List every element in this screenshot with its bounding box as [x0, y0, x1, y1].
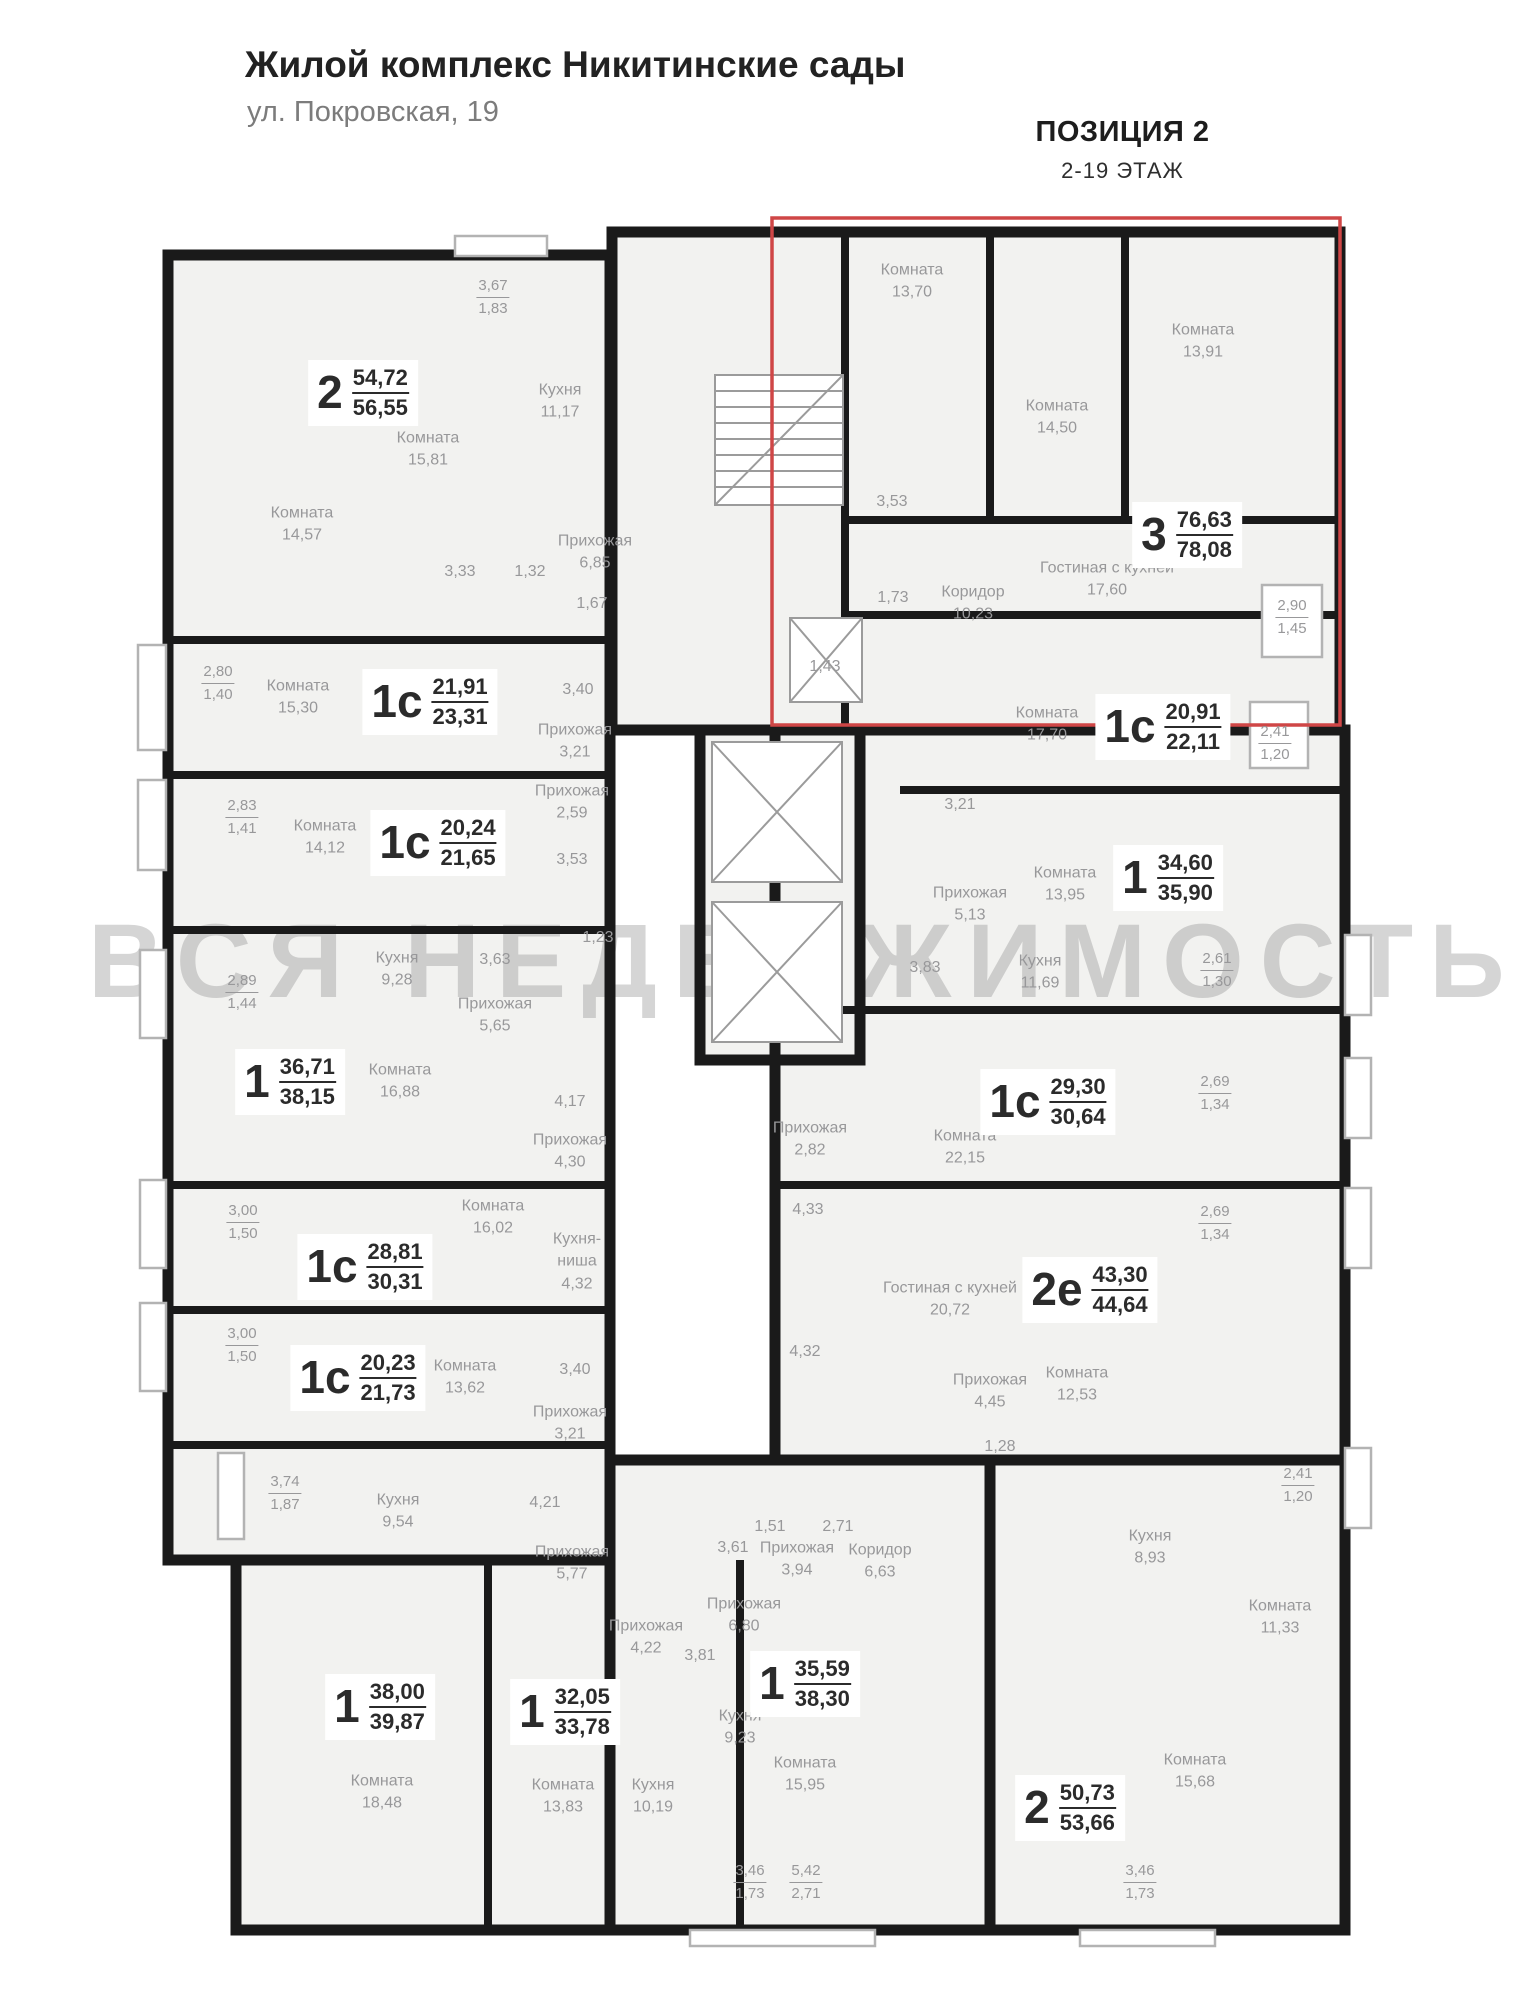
apartment-area-total: 21,73	[361, 1379, 416, 1406]
room-label: Прихожая 2,82	[773, 1118, 847, 1163]
room-label: Прихожая 5,13	[933, 883, 1007, 928]
room-label: Коридор 10,23	[941, 582, 1004, 627]
room-area: 2,71	[822, 1516, 853, 1538]
apartment-area-living: 34,60	[1157, 850, 1214, 879]
dimension-bottom: 1,41	[225, 818, 258, 839]
room-label: 1,51	[754, 1516, 785, 1538]
room-label: Комната 13,83	[532, 1775, 595, 1820]
room-name: Прихожая	[458, 994, 532, 1016]
apartment-area-living: 50,73	[1059, 1780, 1116, 1809]
room-name: Кухня	[377, 1490, 420, 1512]
room-label: 3,53	[556, 849, 587, 871]
room-area: 4,21	[529, 1492, 560, 1514]
room-label: 1,23	[582, 927, 613, 949]
room-area: 13,91	[1172, 342, 1235, 364]
room-area: 16,88	[369, 1082, 432, 1104]
room-area: 15,30	[267, 698, 330, 720]
dimension-label: 3,46 1,73	[733, 1861, 766, 1903]
room-label: Кухня 9,28	[376, 948, 419, 993]
apartment-area-total: 38,30	[795, 1685, 850, 1712]
room-area: 8,93	[1129, 1548, 1172, 1570]
room-area: 17,60	[1040, 580, 1174, 602]
room-name: Прихожая	[533, 1130, 607, 1152]
dimension-top: 2,69	[1198, 1202, 1231, 1224]
room-label: Прихожая 5,65	[458, 994, 532, 1039]
apartment-area-total: 22,11	[1166, 728, 1220, 755]
apartment-area-total: 44,64	[1093, 1291, 1148, 1318]
dimension-bottom: 1,73	[733, 1883, 766, 1904]
room-name: Комната	[1164, 1750, 1227, 1772]
apartment-area-total: 53,66	[1060, 1809, 1115, 1836]
apartment-areas: 54,72 56,55	[352, 365, 409, 421]
apartment-areas: 20,23 21,73	[360, 1350, 417, 1406]
room-label: Комната 14,50	[1026, 396, 1089, 441]
room-label: 2,71	[822, 1516, 853, 1538]
room-area: 1,51	[754, 1516, 785, 1538]
apartment-type: 1	[1122, 857, 1148, 898]
room-area: 6,80	[707, 1616, 781, 1638]
room-area: 9,54	[377, 1512, 420, 1534]
room-area: 14,50	[1026, 418, 1089, 440]
room-name: Кухня	[376, 948, 419, 970]
room-label: 3,63	[479, 949, 510, 971]
room-name: Кухня	[1129, 1526, 1172, 1548]
dimension-top: 3,00	[226, 1201, 259, 1223]
floor-plan-page: Жилой комплекс Никитинские сады ул. Покр…	[0, 0, 1516, 2000]
room-label: 3,61	[717, 1537, 748, 1559]
dimension-label: 5,42 2,71	[789, 1861, 822, 1903]
dimension-top: 5,42	[789, 1861, 822, 1883]
room-label: Комната 13,95	[1034, 863, 1097, 908]
room-label: Коридор 6,63	[848, 1540, 911, 1585]
room-area: 3,63	[479, 949, 510, 971]
room-name: Кухня- ниша	[553, 1228, 601, 1273]
room-area: 3,94	[760, 1560, 834, 1582]
room-area: 1,73	[877, 587, 908, 609]
room-name: Прихожая	[533, 1402, 607, 1424]
room-name: Прихожая	[933, 883, 1007, 905]
room-area: 16,02	[462, 1218, 525, 1240]
apartment-label: 1с 20,91 22,11	[1095, 694, 1230, 760]
room-label: Комната 14,57	[271, 503, 334, 548]
room-name: Прихожая	[535, 781, 609, 803]
room-name: Комната	[271, 503, 334, 525]
room-label: Комната 16,88	[369, 1060, 432, 1105]
room-area: 1,67	[576, 593, 607, 615]
room-area: 6,63	[848, 1562, 911, 1584]
apartment-areas: 20,24 21,65	[440, 815, 497, 871]
dimension-top: 2,90	[1275, 596, 1308, 618]
room-label: 1,73	[877, 587, 908, 609]
room-area: 2,82	[773, 1140, 847, 1162]
room-label: Кухня 11,69	[1019, 951, 1062, 996]
apartment-area-living: 21,91	[432, 674, 489, 703]
dimension-bottom: 1,20	[1281, 1486, 1314, 1507]
room-label: 1,28	[984, 1436, 1015, 1458]
apartment-area-living: 20,23	[360, 1350, 417, 1379]
apartment-areas: 29,30 30,64	[1050, 1074, 1107, 1130]
apartment-type: 1с	[299, 1357, 350, 1398]
apartment-area-living: 76,63	[1176, 507, 1233, 536]
dimension-bottom: 1,40	[201, 684, 234, 705]
apartment-type: 1	[519, 1691, 545, 1732]
room-label: 3,40	[562, 679, 593, 701]
dimension-label: 2,83 1,41	[225, 796, 258, 838]
room-area: 4,17	[554, 1091, 585, 1113]
apartment-label: 2 54,72 56,55	[308, 360, 418, 426]
apartment-type: 1	[334, 1686, 360, 1727]
dimension-label: 2,80 1,40	[201, 662, 234, 704]
room-area: 4,45	[953, 1392, 1027, 1414]
room-label: 3,21	[944, 794, 975, 816]
apartment-area-total: 30,31	[368, 1268, 423, 1295]
room-label: Прихожая 4,30	[533, 1130, 607, 1175]
room-name: Комната	[351, 1771, 414, 1793]
apartment-label: 2 50,73 53,66	[1015, 1775, 1125, 1841]
apartment-area-total: 23,31	[433, 703, 488, 730]
room-label: Комната 15,30	[267, 676, 330, 721]
room-label: Комната 15,81	[397, 428, 460, 473]
room-label: Комната 13,91	[1172, 320, 1235, 365]
room-label: 1,67	[576, 593, 607, 615]
room-area: 3,81	[684, 1645, 715, 1667]
room-area: 1,23	[582, 927, 613, 949]
apartment-areas: 32,05 33,78	[554, 1684, 611, 1740]
room-label: Кухня 8,93	[1129, 1526, 1172, 1571]
room-label: Комната 11,33	[1249, 1596, 1312, 1641]
elevator-icons	[712, 618, 862, 1042]
apartment-area-living: 43,30	[1092, 1262, 1149, 1291]
room-name: Прихожая	[773, 1118, 847, 1140]
dimension-label: 2,41 1,20	[1281, 1464, 1314, 1506]
room-label: Прихожая 3,21	[538, 720, 612, 765]
apartment-area-living: 29,30	[1050, 1074, 1107, 1103]
dimension-label: 3,46 1,73	[1123, 1861, 1156, 1903]
room-area: 5,77	[535, 1564, 609, 1586]
dimension-bottom: 1,20	[1258, 744, 1291, 765]
room-label: 4,17	[554, 1091, 585, 1113]
apartment-label: 1с 28,81 30,31	[297, 1234, 432, 1300]
apartment-areas: 21,91 23,31	[432, 674, 489, 730]
dimension-bottom: 2,71	[789, 1883, 822, 1904]
apartment-area-living: 54,72	[352, 365, 409, 394]
room-name: Комната	[294, 816, 357, 838]
page-address: ул. Покровская, 19	[247, 96, 499, 129]
room-label: 3,40	[559, 1359, 590, 1381]
apartment-area-living: 35,59	[794, 1656, 851, 1685]
position-block: ПОЗИЦИЯ 2 2-19 ЭТАЖ	[1015, 116, 1230, 184]
room-area: 3,21	[538, 742, 612, 764]
dimension-bottom: 1,34	[1198, 1224, 1231, 1245]
room-name: Кухня	[539, 380, 582, 402]
dimension-label: 2,89 1,44	[225, 971, 258, 1013]
room-area: 22,15	[934, 1148, 997, 1170]
room-area: 12,53	[1046, 1385, 1109, 1407]
apartment-type: 1с	[1104, 706, 1155, 747]
room-label: Комната 15,95	[774, 1753, 837, 1798]
dimension-bottom: 1,50	[226, 1223, 259, 1244]
apartment-area-living: 38,00	[369, 1679, 426, 1708]
apartment-type: 2е	[1031, 1269, 1082, 1310]
room-name: Комната	[1046, 1363, 1109, 1385]
floors-label: 2-19 ЭТАЖ	[1015, 158, 1230, 184]
dimension-label: 3,74 1,87	[268, 1472, 301, 1514]
apartment-areas: 35,59 38,30	[794, 1656, 851, 1712]
dimension-bottom: 1,83	[476, 298, 509, 319]
room-name: Гостиная с кухней	[883, 1278, 1017, 1300]
room-label: Прихожая 4,22	[609, 1616, 683, 1661]
room-name: Комната	[267, 676, 330, 698]
room-name: Прихожая	[609, 1616, 683, 1638]
room-area: 11,69	[1019, 973, 1062, 995]
apartment-type: 2	[317, 372, 343, 413]
room-area: 15,81	[397, 450, 460, 472]
apartment-type: 1с	[306, 1246, 357, 1287]
room-label: 3,83	[909, 957, 940, 979]
room-area: 15,95	[774, 1775, 837, 1797]
room-label: 4,32	[789, 1341, 820, 1363]
apartment-type: 1	[759, 1663, 785, 1704]
room-area: 1,43	[809, 656, 840, 678]
apartment-label: 2е 43,30 44,64	[1022, 1257, 1157, 1323]
apartment-type: 1с	[371, 681, 422, 722]
dimension-top: 3,67	[476, 276, 509, 298]
room-name: Комната	[397, 428, 460, 450]
room-label: 3,53	[876, 491, 907, 513]
apartment-area-living: 28,81	[367, 1239, 424, 1268]
dimension-label: 3,67 1,83	[476, 276, 509, 318]
room-area: 4,30	[533, 1152, 607, 1174]
room-label: Комната 13,62	[434, 1356, 497, 1401]
room-name: Комната	[1016, 703, 1079, 725]
dimension-bottom: 1,44	[225, 993, 258, 1014]
room-name: Комната	[774, 1753, 837, 1775]
room-area: 3,53	[876, 491, 907, 513]
apartment-area-total: 21,65	[441, 844, 496, 871]
room-area: 9,28	[376, 970, 419, 992]
dimension-bottom: 1,87	[268, 1494, 301, 1515]
room-label: 3,33	[444, 561, 475, 583]
room-name: Прихожая	[535, 1542, 609, 1564]
apartment-label: 1 36,71 38,15	[235, 1049, 345, 1115]
dimension-label: 2,69 1,34	[1198, 1072, 1231, 1114]
apartment-label: 1 35,59 38,30	[750, 1651, 860, 1717]
room-label: Прихожая 3,21	[533, 1402, 607, 1447]
apartment-label: 1 38,00 39,87	[325, 1674, 435, 1740]
apartment-label: 3 76,63 78,08	[1132, 502, 1242, 568]
dimension-top: 2,41	[1258, 722, 1291, 744]
room-label: Комната 15,68	[1164, 1750, 1227, 1795]
apartment-area-living: 32,05	[554, 1684, 611, 1713]
dimension-bottom: 1,45	[1275, 618, 1308, 639]
room-name: Коридор	[941, 582, 1004, 604]
room-area: 11,33	[1249, 1618, 1312, 1640]
dimension-top: 3,46	[733, 1861, 766, 1883]
room-area: 10,23	[941, 604, 1004, 626]
room-label: Прихожая 6,80	[707, 1594, 781, 1639]
dimension-label: 3,00 1,50	[226, 1201, 259, 1243]
room-area: 3,40	[562, 679, 593, 701]
room-area: 3,21	[944, 794, 975, 816]
dimension-top: 2,41	[1281, 1464, 1314, 1486]
dimension-label: 2,69 1,34	[1198, 1202, 1231, 1244]
room-area: 11,17	[539, 402, 582, 424]
dimension-label: 3,00 1,50	[225, 1324, 258, 1366]
room-label: Комната 17,70	[1016, 703, 1079, 748]
apartment-area-total: 30,64	[1051, 1103, 1106, 1130]
room-area: 2,59	[535, 803, 609, 825]
dimension-top: 2,83	[225, 796, 258, 818]
apartment-type: 1с	[379, 822, 430, 863]
room-label: Кухня 11,17	[539, 380, 582, 425]
room-name: Комната	[1034, 863, 1097, 885]
dimension-top: 3,74	[268, 1472, 301, 1494]
apartment-type: 1с	[989, 1081, 1040, 1122]
room-name: Комната	[532, 1775, 595, 1797]
apartment-area-total: 56,55	[353, 394, 408, 421]
room-area: 13,83	[532, 1797, 595, 1819]
staircase-icon	[715, 375, 843, 505]
room-name: Комната	[462, 1196, 525, 1218]
apartment-areas: 43,30 44,64	[1092, 1262, 1149, 1318]
room-area: 4,32	[553, 1273, 601, 1295]
apartment-type: 3	[1141, 514, 1167, 555]
apartment-area-total: 38,15	[280, 1083, 335, 1110]
room-name: Прихожая	[707, 1594, 781, 1616]
room-area: 4,22	[609, 1638, 683, 1660]
room-area: 13,70	[881, 282, 944, 304]
apartment-label: 1 34,60 35,90	[1113, 845, 1223, 911]
room-label: Комната 13,70	[881, 260, 944, 305]
room-label: Гостиная с кухней 20,72	[883, 1278, 1017, 1323]
room-area: 10,19	[632, 1797, 675, 1819]
apartment-areas: 50,73 53,66	[1059, 1780, 1116, 1836]
room-label: 1,43	[809, 656, 840, 678]
room-name: Комната	[369, 1060, 432, 1082]
room-label: Комната 14,12	[294, 816, 357, 861]
apartment-label: 1с 20,24 21,65	[370, 810, 505, 876]
dimension-top: 3,00	[225, 1324, 258, 1346]
room-name: Прихожая	[558, 531, 632, 553]
room-label: 4,33	[792, 1199, 823, 1221]
room-label: 1,32	[514, 561, 545, 583]
dimension-bottom: 1,34	[1198, 1094, 1231, 1115]
apartment-area-total: 35,90	[1158, 879, 1213, 906]
room-area: 3,61	[717, 1537, 748, 1559]
room-area: 14,12	[294, 838, 357, 860]
room-area: 3,33	[444, 561, 475, 583]
room-label: Комната 18,48	[351, 1771, 414, 1816]
apartment-areas: 34,60 35,90	[1157, 850, 1214, 906]
dimension-top: 2,89	[225, 971, 258, 993]
room-area: 13,95	[1034, 885, 1097, 907]
room-name: Комната	[1172, 320, 1235, 342]
room-area: 9,23	[719, 1728, 762, 1750]
dimension-top: 2,61	[1200, 949, 1233, 971]
room-label: 3,81	[684, 1645, 715, 1667]
dimension-label: 2,61 1,30	[1200, 949, 1233, 991]
room-area: 3,83	[909, 957, 940, 979]
room-area: 20,72	[883, 1300, 1017, 1322]
room-name: Комната	[1249, 1596, 1312, 1618]
room-label: Кухня 9,54	[377, 1490, 420, 1535]
room-area: 3,53	[556, 849, 587, 871]
dimension-bottom: 1,30	[1200, 971, 1233, 992]
room-label: Кухня- ниша 4,32	[553, 1228, 601, 1295]
room-name: Комната	[881, 260, 944, 282]
room-name: Кухня	[632, 1775, 675, 1797]
room-area: 3,21	[533, 1424, 607, 1446]
room-name: Кухня	[1019, 951, 1062, 973]
apartment-type: 2	[1024, 1787, 1050, 1828]
apartment-area-living: 36,71	[279, 1054, 336, 1083]
page-title: Жилой комплекс Никитинские сады	[245, 44, 906, 86]
room-label: Прихожая 4,45	[953, 1370, 1027, 1415]
apartment-label: 1с 20,23 21,73	[290, 1345, 425, 1411]
apartment-label: 1 32,05 33,78	[510, 1679, 620, 1745]
room-area: 5,65	[458, 1016, 532, 1038]
room-area: 1,28	[984, 1436, 1015, 1458]
room-name: Коридор	[848, 1540, 911, 1562]
room-area: 18,48	[351, 1793, 414, 1815]
dimension-top: 3,46	[1123, 1861, 1156, 1883]
room-label: Прихожая 3,94	[760, 1538, 834, 1583]
room-area: 17,70	[1016, 725, 1079, 747]
apartment-area-total: 78,08	[1177, 536, 1232, 563]
room-area: 4,32	[789, 1341, 820, 1363]
room-area: 5,13	[933, 905, 1007, 927]
apartment-label: 1с 29,30 30,64	[980, 1069, 1115, 1135]
apartment-areas: 36,71 38,15	[279, 1054, 336, 1110]
apartment-area-living: 20,24	[440, 815, 497, 844]
apartment-area-total: 33,78	[555, 1713, 610, 1740]
room-name: Комната	[1026, 396, 1089, 418]
room-label: Прихожая 6,85	[558, 531, 632, 576]
room-name: Комната	[434, 1356, 497, 1378]
room-label: Прихожая 2,59	[535, 781, 609, 826]
room-area: 1,32	[514, 561, 545, 583]
apartment-areas: 20,91 22,11	[1165, 699, 1222, 755]
dimension-top: 2,80	[201, 662, 234, 684]
room-area: 6,85	[558, 553, 632, 575]
room-area: 14,57	[271, 525, 334, 547]
apartment-type: 1	[244, 1061, 270, 1102]
room-label: Комната 16,02	[462, 1196, 525, 1241]
dimension-bottom: 1,73	[1123, 1883, 1156, 1904]
apartment-areas: 38,00 39,87	[369, 1679, 426, 1735]
room-area: 13,62	[434, 1378, 497, 1400]
room-label: Кухня 10,19	[632, 1775, 675, 1820]
dimension-label: 2,90 1,45	[1275, 596, 1308, 638]
dimension-bottom: 1,50	[225, 1346, 258, 1367]
room-area: 4,33	[792, 1199, 823, 1221]
room-name: Прихожая	[953, 1370, 1027, 1392]
room-label: Прихожая 5,77	[535, 1542, 609, 1587]
dimension-label: 2,41 1,20	[1258, 722, 1291, 764]
apartment-areas: 28,81 30,31	[367, 1239, 424, 1295]
apartment-label: 1с 21,91 23,31	[362, 669, 497, 735]
apartment-area-total: 39,87	[370, 1708, 425, 1735]
room-name: Прихожая	[538, 720, 612, 742]
room-area: 15,68	[1164, 1772, 1227, 1794]
dimension-top: 2,69	[1198, 1072, 1231, 1094]
room-area: 3,40	[559, 1359, 590, 1381]
position-label: ПОЗИЦИЯ 2	[1015, 116, 1230, 149]
room-label: 4,21	[529, 1492, 560, 1514]
room-name: Прихожая	[760, 1538, 834, 1560]
apartment-area-living: 20,91	[1165, 699, 1222, 728]
apartment-areas: 76,63 78,08	[1176, 507, 1233, 563]
